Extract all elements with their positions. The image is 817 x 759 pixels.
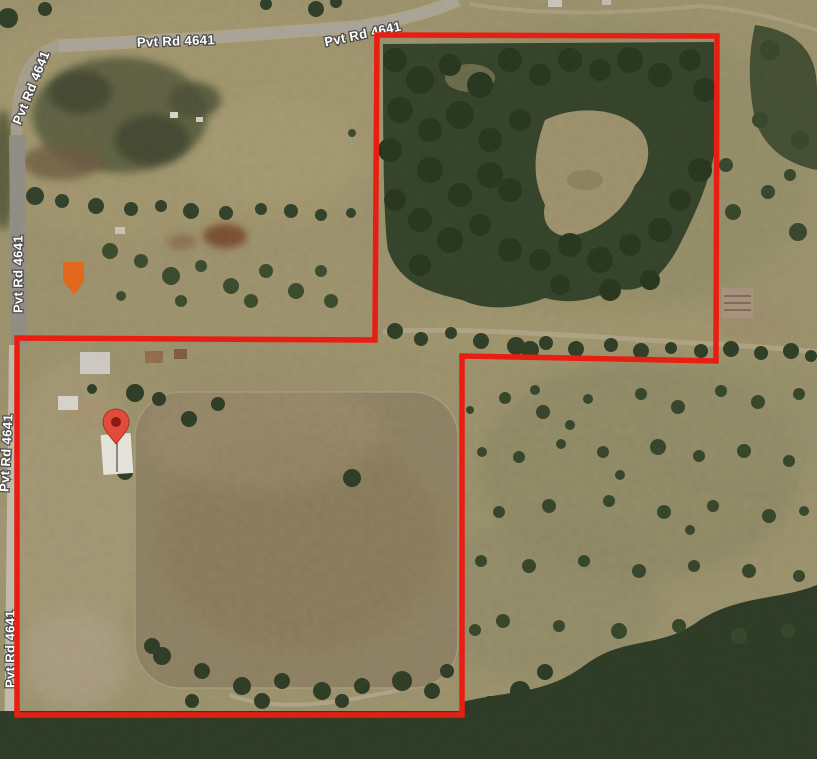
texture-overlay-fine — [0, 0, 817, 759]
road-label: Pvt Rd 4641 — [137, 32, 216, 50]
satellite-map[interactable]: Pvt Rd 4641Pvt Rd 4641Pvt Rd 4641Pvt Rd … — [0, 0, 817, 759]
map-canvas: Pvt Rd 4641Pvt Rd 4641Pvt Rd 4641Pvt Rd … — [0, 0, 817, 759]
map-pin-hole — [111, 417, 121, 427]
road-label: Pvt Rd 4641 — [10, 235, 25, 313]
